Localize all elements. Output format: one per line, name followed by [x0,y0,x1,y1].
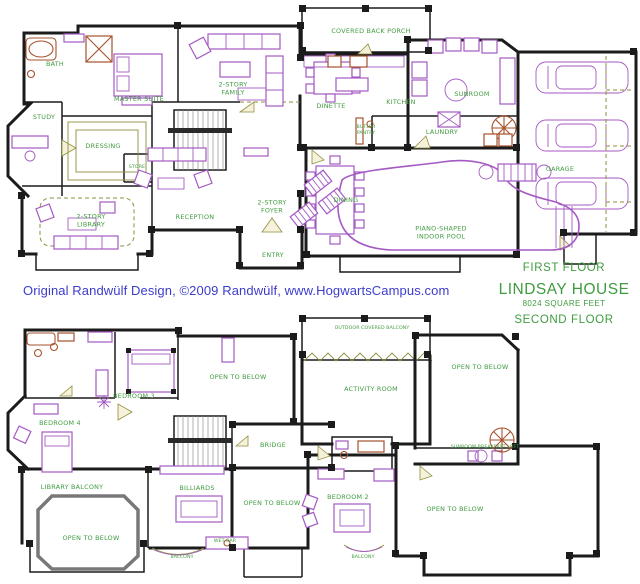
spiral-staircase-icon-2 [490,428,514,452]
house-area: 8024 SQUARE FEET [523,299,606,308]
master-bath-fixtures [26,34,112,78]
second-floor-stairs [160,416,232,474]
second-floor-bath-fixtures [27,332,112,357]
bedroom2-furniture [302,469,394,532]
bedroom3-furniture [96,338,234,396]
breakfast-loft-furniture [468,450,502,462]
library-furniture [36,202,118,249]
billiards-table [176,496,222,522]
garage-cars [536,56,634,232]
first-floor-plan [8,5,637,272]
house-name: LINDSAY HOUSE [499,281,630,299]
master-bed [114,54,162,105]
floor-plan-page: BATHMASTER SUITE2-STORY FAMILYSTUDYDRESS… [0,0,640,584]
family-room-furniture [189,34,283,106]
credit-line: Original Randwülf Design, ©2009 Randwülf… [23,283,449,298]
second-floor-plan [8,315,600,577]
second-floor-caption: SECOND FLOOR [514,314,613,326]
reception-furniture [134,148,268,189]
first-floor-caption: FIRST FLOOR [523,262,605,274]
